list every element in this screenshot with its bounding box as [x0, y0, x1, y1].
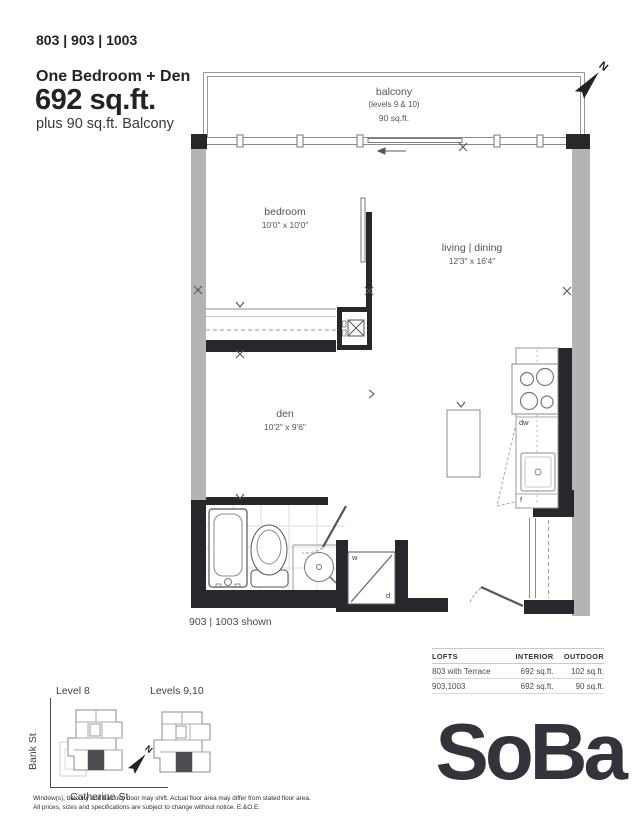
disclaimer: Window(s), balcony and balcony door may … — [33, 795, 393, 812]
bank-st-line — [50, 698, 51, 788]
fridge-swing — [497, 428, 515, 506]
laundry-closet — [336, 540, 408, 612]
table-header-outdoor: OUTDOOR — [554, 649, 604, 664]
balcony-area: 90 sq.ft. — [294, 112, 494, 124]
tick-marks — [194, 143, 571, 499]
balcony-label-block: balcony (levels 9 & 10) 90 sq.ft. — [294, 86, 494, 124]
entry — [408, 490, 574, 614]
area-table: LOFTS INTERIOR OUTDOOR 803 with Terrace … — [432, 648, 604, 694]
entry-door — [481, 587, 523, 606]
floorplan-page: 803 | 903 | 1003 One Bedroom + Den 692 s… — [0, 0, 640, 828]
kitchen — [497, 348, 572, 508]
table-row: 803 with Terrace 692 sq.ft. 102 sq.ft. — [432, 664, 604, 679]
disclaimer-line2: All prices, sizes and specifications are… — [33, 804, 393, 813]
bedroom-label: bedroom — [215, 206, 355, 218]
column-box — [340, 310, 370, 348]
balcony-levels: (levels 9 & 10) — [294, 99, 494, 111]
bathtub — [209, 509, 247, 588]
kitchen-sink — [521, 453, 555, 491]
table-row: 903,1003 692 sq.ft. 90 sq.ft. — [432, 679, 604, 694]
bedroom-dims: 10'0" x 10'0" — [215, 219, 355, 231]
living-dims: 12'3" x 16'4" — [402, 255, 542, 267]
bedroom-label-block: bedroom 10'0" x 10'0" — [215, 206, 355, 231]
north-label: N — [143, 743, 154, 755]
catherine-st-line — [50, 787, 168, 788]
soba-logo: SoBa — [436, 712, 625, 792]
den-dims: 10'2" x 9'6" — [215, 421, 355, 433]
wall-cap-right — [566, 134, 590, 149]
plan-caption: 903 | 1003 shown — [189, 616, 272, 628]
loft-cell: 903,1003 — [432, 679, 506, 694]
outdoor-cell: 90 sq.ft. — [554, 679, 604, 694]
den-label: den — [215, 408, 355, 420]
loft-cell: 803 with Terrace — [432, 664, 506, 679]
disclaimer-line1: Window(s), balcony and balcony door may … — [33, 795, 393, 804]
bedroom-slider-door — [361, 198, 365, 262]
keyplan-level8-label: Level 8 — [56, 685, 90, 697]
dishwasher-label: dw — [519, 419, 529, 427]
dryer-label: d — [386, 592, 390, 600]
stove — [512, 364, 558, 414]
bank-st-label: Bank St — [27, 733, 39, 770]
toilet — [251, 525, 288, 587]
window-wall — [191, 134, 590, 154]
living-label: living | dining — [402, 242, 542, 254]
bathroom — [191, 497, 346, 608]
living-label-block: living | dining 12'3" x 16'4" — [402, 242, 542, 267]
kitchen-island — [447, 410, 480, 477]
interior-cell: 692 sq.ft. — [506, 679, 554, 694]
north-label: N — [596, 60, 610, 74]
table-header-lofts: LOFTS — [432, 649, 506, 664]
den-label-block: den 10'2" x 9'6" — [215, 408, 355, 433]
bedroom-divider-wall — [361, 198, 372, 308]
balcony-label: balcony — [294, 86, 494, 98]
fridge-label: f — [520, 496, 522, 504]
bedroom-closet — [206, 309, 336, 352]
keyplan-levels910 — [148, 702, 222, 780]
highlighted-unit — [176, 752, 192, 772]
washer-label: w — [352, 554, 357, 562]
outdoor-cell: 102 sq.ft. — [554, 664, 604, 679]
slider-arrow-icon — [378, 148, 406, 154]
interior-cell: 692 sq.ft. — [506, 664, 554, 679]
table-header-interior: INTERIOR — [506, 649, 554, 664]
keyplan-north-arrow-icon: N — [112, 740, 156, 782]
keyplan-levels910-label: Levels 9,10 — [150, 685, 204, 697]
wall-cap-left — [191, 134, 207, 149]
balcony-slider-door — [368, 139, 462, 143]
highlighted-unit — [88, 750, 104, 770]
